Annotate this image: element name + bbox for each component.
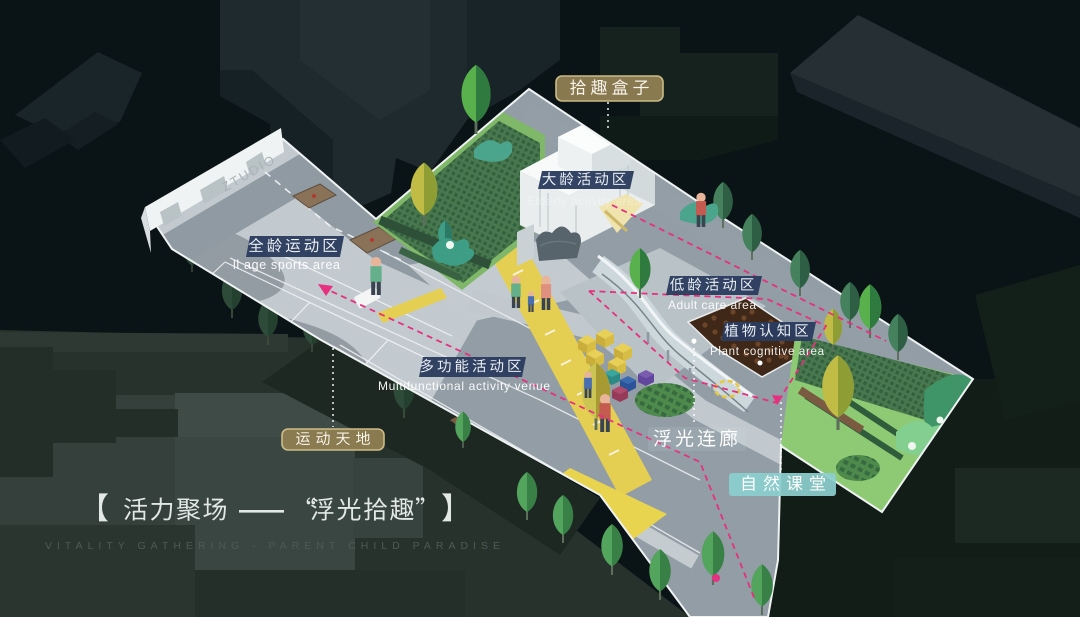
svg-text:Multifunctional activity venue: Multifunctional activity venue bbox=[378, 379, 550, 393]
svg-text:Elderly activity area: Elderly activity area bbox=[527, 194, 641, 208]
svg-text:ll age sports area: ll age sports area bbox=[233, 258, 340, 272]
svg-text:Adult care area: Adult care area bbox=[668, 298, 756, 312]
svg-text:VITALITY GATHERING - PARENT CH: VITALITY GATHERING - PARENT CHILD PARADI… bbox=[45, 540, 505, 552]
svg-text:Plant cognitive area: Plant cognitive area bbox=[710, 346, 825, 358]
